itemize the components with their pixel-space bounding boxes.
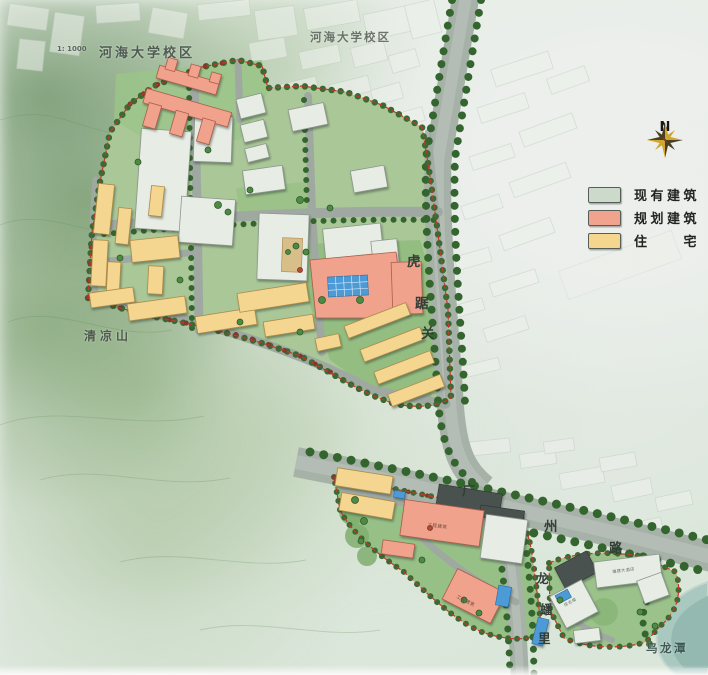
legend: 现有建筑 规划建筑 住 宅: [588, 187, 700, 248]
legend-swatch-planned: [588, 210, 621, 226]
pond-label: 乌龙潭: [646, 640, 688, 656]
legend-label-planned: 规划建筑: [634, 208, 700, 227]
scale-label: 1: 1000: [57, 45, 87, 53]
legend-row-planned: 规划建筑: [588, 210, 700, 225]
longpanli-char-3: 里: [538, 628, 551, 647]
legend-row-existing: 现有建筑: [588, 187, 700, 202]
mountain-label: 清凉山: [84, 327, 132, 344]
legend-swatch-residential: [588, 233, 621, 249]
longpanli-char-2: 蟠: [540, 599, 553, 618]
legend-swatch-existing: [588, 187, 621, 203]
campus-label-left: 河海大学校区: [99, 42, 195, 61]
campus-master-plan-map: 1: 1000 河海大学校区 河海大学校区 清凉山 乌龙潭 虎 踞 关 广 州 …: [0, 0, 708, 675]
solar-roof: [328, 275, 369, 297]
campus-label-top: 河海大学校区: [310, 29, 391, 45]
guangzhou-char-3: 路: [609, 537, 623, 557]
legend-label-residential: 住 宅: [634, 231, 700, 250]
hujuguan-char-1: 虎: [407, 250, 421, 270]
legend-label-existing: 现有建筑: [634, 185, 700, 204]
compass: N: [645, 120, 685, 136]
hujuguan-char-2: 踞: [415, 292, 429, 312]
guangzhou-char-1: 广: [462, 479, 476, 499]
guangzhou-char-2: 州: [544, 515, 558, 535]
compass-star-icon: [645, 120, 685, 160]
longpanli-char-1: 龙: [536, 568, 549, 587]
hujuguan-char-3: 关: [421, 322, 435, 342]
legend-row-residential: 住 宅: [588, 233, 700, 248]
